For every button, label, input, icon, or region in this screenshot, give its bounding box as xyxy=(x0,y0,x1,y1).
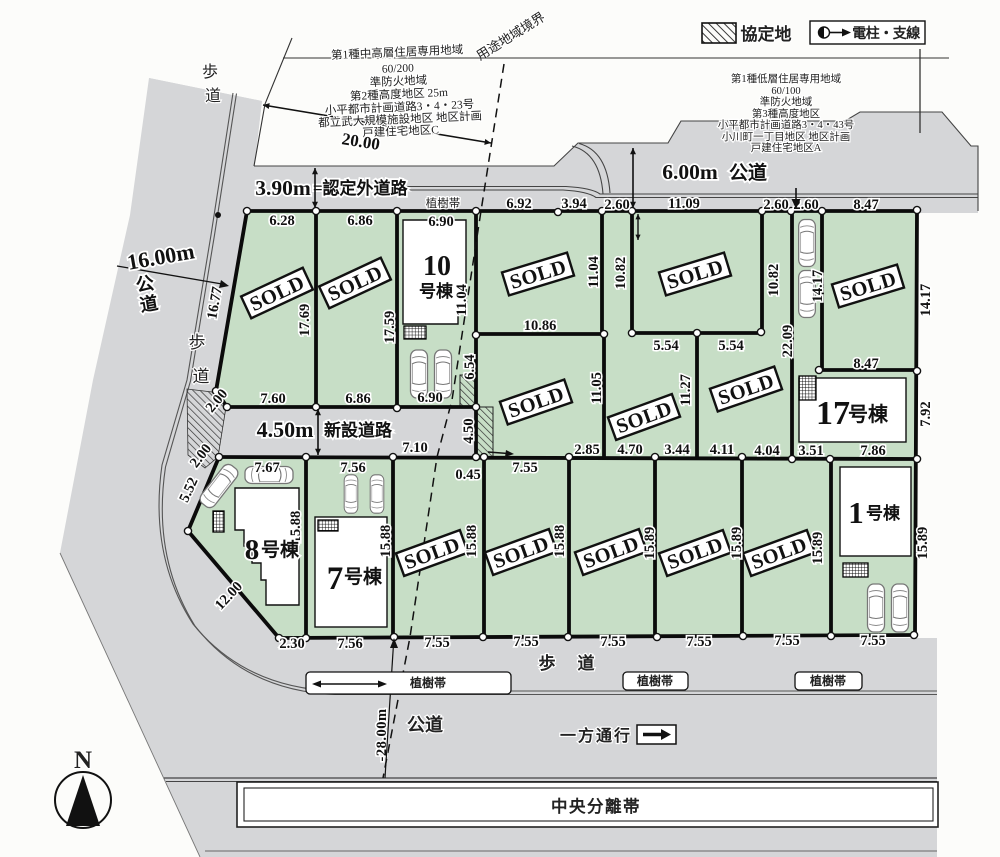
svg-text:14.17: 14.17 xyxy=(918,284,934,317)
svg-text:4.50m: 4.50m xyxy=(257,417,314,442)
svg-text:新設道路: 新設道路 xyxy=(324,420,393,440)
svg-text:電柱・支線: 電柱・支線 xyxy=(852,25,920,42)
svg-text:戸建住宅地区A: 戸建住宅地区A xyxy=(751,141,822,154)
svg-text:17: 17 xyxy=(816,395,850,432)
svg-text:7.55: 7.55 xyxy=(424,635,449,651)
svg-text:7: 7 xyxy=(327,561,344,597)
svg-text:10.82: 10.82 xyxy=(613,257,629,290)
svg-text:3.90m: 3.90m xyxy=(255,176,311,200)
svg-text:4.04: 4.04 xyxy=(754,443,779,459)
svg-text:6.90: 6.90 xyxy=(417,390,442,406)
svg-text:22.09: 22.09 xyxy=(780,325,796,358)
svg-text:7.55: 7.55 xyxy=(774,633,799,649)
svg-text:道: 道 xyxy=(205,87,221,105)
svg-text:中央分離帯: 中央分離帯 xyxy=(551,796,641,816)
svg-text:植樹帯: 植樹帯 xyxy=(409,675,446,690)
svg-text:1: 1 xyxy=(848,495,864,530)
svg-text:6.54: 6.54 xyxy=(462,354,478,379)
svg-text:植樹帯: 植樹帯 xyxy=(809,673,846,688)
svg-text:7.67: 7.67 xyxy=(254,460,279,476)
svg-text:6.90: 6.90 xyxy=(428,214,453,230)
svg-text:小平都市計画道路3・4・43号: 小平都市計画道路3・4・43号 xyxy=(718,118,855,131)
svg-text:15.88: 15.88 xyxy=(288,511,304,544)
svg-text:7.55: 7.55 xyxy=(860,633,885,649)
svg-text:号棟: 号棟 xyxy=(261,538,300,561)
svg-text:歩: 歩 xyxy=(189,333,206,352)
svg-text:道: 道 xyxy=(138,292,159,316)
svg-text:公: 公 xyxy=(134,273,155,296)
svg-text:号棟: 号棟 xyxy=(848,402,889,426)
svg-text:11.27: 11.27 xyxy=(678,374,694,406)
svg-text:公道: 公道 xyxy=(729,161,767,184)
svg-text:4.70: 4.70 xyxy=(617,442,642,458)
svg-text:歩: 歩 xyxy=(202,63,218,81)
svg-text:号棟: 号棟 xyxy=(866,503,901,523)
svg-text:15.89: 15.89 xyxy=(915,527,931,560)
svg-text:15.88: 15.88 xyxy=(464,525,480,558)
svg-text:4.50: 4.50 xyxy=(461,418,477,443)
svg-text:7.10: 7.10 xyxy=(402,440,427,456)
svg-text:6.00m: 6.00m xyxy=(662,160,718,184)
svg-text:8.47: 8.47 xyxy=(853,197,878,213)
svg-text:第1種低層住居専用地域: 第1種低層住居専用地域 xyxy=(731,72,842,85)
svg-text:協定地: 協定地 xyxy=(741,24,792,44)
svg-text:17.59: 17.59 xyxy=(382,311,398,344)
svg-text:歩: 歩 xyxy=(539,653,556,673)
svg-text:6.86: 6.86 xyxy=(347,213,372,229)
svg-text:7.92: 7.92 xyxy=(918,401,934,426)
svg-text:2.85: 2.85 xyxy=(574,442,599,458)
svg-text:6.86: 6.86 xyxy=(345,391,370,407)
svg-text:15.89: 15.89 xyxy=(729,527,745,560)
svg-text:5.54: 5.54 xyxy=(653,338,678,354)
svg-text:7.55: 7.55 xyxy=(513,634,538,650)
svg-text:15.88: 15.88 xyxy=(378,525,394,558)
svg-text:植樹帯: 植樹帯 xyxy=(426,196,461,210)
svg-text:5.54: 5.54 xyxy=(718,338,743,354)
svg-text:7.55: 7.55 xyxy=(600,634,625,650)
svg-text:11.05: 11.05 xyxy=(589,372,605,404)
svg-text:第3種高度地区: 第3種高度地区 xyxy=(752,107,820,120)
svg-text:7.86: 7.86 xyxy=(860,443,885,459)
svg-text:準防火地域: 準防火地域 xyxy=(760,95,813,108)
svg-text:15.89: 15.89 xyxy=(810,532,826,565)
svg-text:60/200: 60/200 xyxy=(382,62,415,75)
svg-text:号棟: 号棟 xyxy=(344,565,383,588)
svg-text:N: N xyxy=(74,747,92,774)
svg-text:3.51: 3.51 xyxy=(798,443,823,459)
svg-text:11.04: 11.04 xyxy=(454,284,470,316)
svg-text:0.45: 0.45 xyxy=(455,467,480,483)
svg-text:号棟: 号棟 xyxy=(419,281,454,301)
svg-text:7.56: 7.56 xyxy=(337,636,362,652)
svg-text:7.55: 7.55 xyxy=(686,634,711,650)
svg-text:60/100: 60/100 xyxy=(771,86,800,97)
svg-text:7.55: 7.55 xyxy=(512,460,537,476)
svg-text:10.86: 10.86 xyxy=(524,318,557,334)
svg-text:11.09: 11.09 xyxy=(668,196,700,212)
svg-text:植樹帯: 植樹帯 xyxy=(636,673,673,688)
svg-text:6.92: 6.92 xyxy=(506,196,531,212)
svg-text:2.30: 2.30 xyxy=(279,636,304,652)
svg-text:小川町一丁目地区 地区計画: 小川町一丁目地区 地区計画 xyxy=(722,130,851,143)
svg-text:一方通行: 一方通行 xyxy=(560,726,632,745)
svg-text:15.89: 15.89 xyxy=(642,527,658,560)
svg-text:7.56: 7.56 xyxy=(340,460,365,476)
svg-text:認定外道路: 認定外道路 xyxy=(323,178,409,198)
svg-text:2.60: 2.60 xyxy=(604,197,629,213)
svg-text:4.11: 4.11 xyxy=(710,442,735,458)
svg-text:15.88: 15.88 xyxy=(552,525,568,558)
svg-text:3.44: 3.44 xyxy=(664,442,689,458)
svg-text:8.47: 8.47 xyxy=(853,356,878,372)
svg-text:6.28: 6.28 xyxy=(269,213,294,229)
svg-text:2.60: 2.60 xyxy=(763,197,788,213)
svg-text:14.17: 14.17 xyxy=(810,270,826,303)
svg-text:11.04: 11.04 xyxy=(586,256,602,288)
svg-text:10.82: 10.82 xyxy=(766,264,782,297)
svg-text:道: 道 xyxy=(193,367,210,386)
svg-text:3.94: 3.94 xyxy=(561,196,586,212)
svg-text:道: 道 xyxy=(578,653,595,673)
svg-text:7.60: 7.60 xyxy=(260,391,285,407)
svg-text:8: 8 xyxy=(245,534,260,566)
svg-text:17.69: 17.69 xyxy=(297,304,313,337)
svg-text:公道: 公道 xyxy=(407,714,443,735)
svg-text:10: 10 xyxy=(423,251,451,282)
